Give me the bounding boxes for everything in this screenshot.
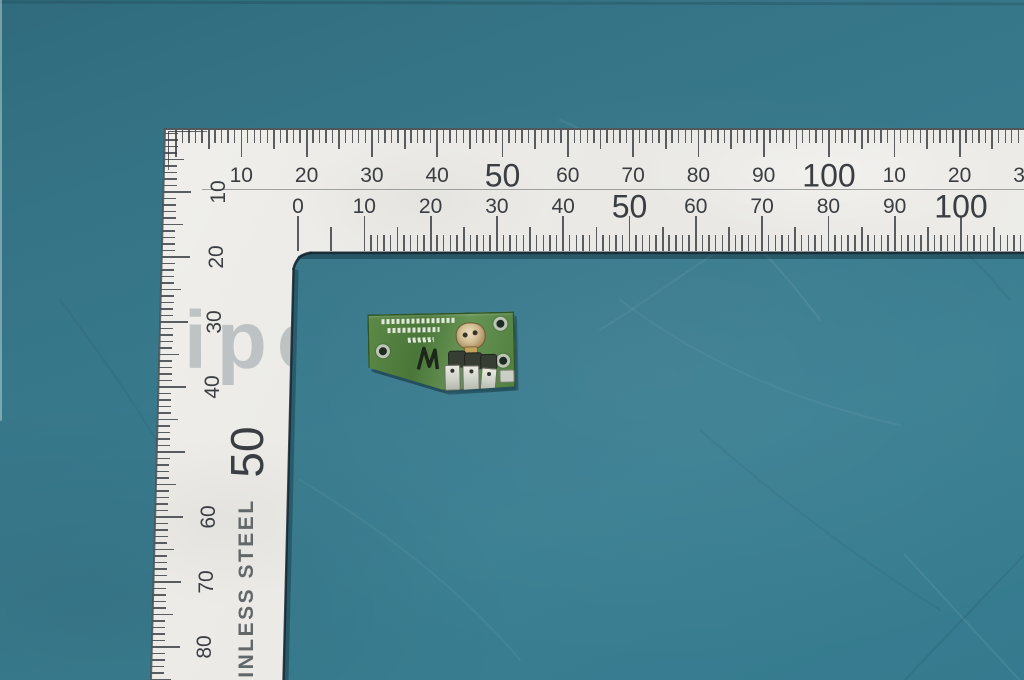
ruler-number-top: 10 [883,164,906,188]
ruler-tick [576,235,577,251]
ruler-tick [788,235,789,251]
ruler-tick [658,130,659,143]
ruler-tick [164,172,177,173]
ruler-tick [162,256,190,258]
ruler-tick [998,130,999,143]
ruler-number-top: 40 [426,164,449,188]
ruler-tick [954,235,955,251]
ruler-tick [254,130,255,143]
ruler-tick [543,235,544,251]
ruler-tick [489,235,490,251]
ruler-tick [947,235,948,251]
ruler-tick [345,130,346,143]
ruler-tick [639,130,640,143]
ruler-tick [160,328,173,329]
ruler-tick [619,130,620,143]
ruler-tick [188,130,189,143]
ruler-tick [529,227,531,251]
ruler-tick [655,235,656,251]
ruler-tick [675,235,676,251]
ruler-tick [952,130,953,143]
ruler-tick [665,130,667,149]
ruler-tick [756,130,757,143]
ruler-tick [536,235,537,251]
ruler-tick [914,235,915,251]
ruler-tick [717,130,718,143]
ruler-tick [154,575,167,576]
ruler-number-top: 20 [295,164,318,188]
ruler-tick [815,130,816,143]
ruler-tick [715,235,716,251]
ruler-tick [645,130,646,143]
ruler-tick [775,235,776,251]
ruler-tick [502,130,504,157]
ruler-tick [789,130,790,143]
ruler-tick [495,130,496,143]
ruler-tick [939,130,940,143]
ruler-number-left: 20 [205,245,229,268]
ruler-tick [383,235,384,251]
ruler-tick [306,130,308,157]
ruler-tick [972,130,973,143]
ruler-tick [509,235,510,251]
ruler-tick [900,130,901,143]
ruler-tick [609,235,610,251]
ruler-tick [503,235,504,251]
silkscreen-text-row [387,327,439,333]
ruler-tick [761,216,763,251]
ruler-tick [159,367,172,368]
ruler-tick [596,227,598,251]
mounting-hole [376,344,390,358]
ruler-tick [164,159,184,161]
ruler-tick [606,130,607,143]
ruler-tick [934,235,935,251]
ruler-tick [159,380,172,381]
ruler-tick [267,130,268,143]
ruler-tick [671,130,672,143]
ruler-tick [615,235,616,251]
ruler-tick [443,130,444,143]
ruler-tick [750,130,751,143]
ruler-tick [722,235,723,251]
product-photo: ipc STAINLESS STEEL 10203040506070809010… [0,0,1024,680]
ruler-tick [874,130,875,143]
ruler-tick [154,555,167,556]
ruler-tick [769,130,770,143]
ruler-tick [569,235,570,251]
ruler-tick [881,235,882,251]
ruler-tick [534,130,536,149]
ruler-tick [632,130,634,157]
ruler-tick [423,130,424,143]
ruler-tick [162,263,175,264]
ruler-tick [330,227,332,251]
ruler-tick [410,130,411,143]
ruler-tick [161,302,174,303]
mounting-hole [493,317,507,331]
ruler-number-top: 30 [1013,164,1024,188]
ruler-tick [987,235,988,251]
ruler-tick [195,130,196,143]
ruler-tick [861,227,863,251]
ruler-tick [528,130,529,143]
ruler-tick [155,516,183,518]
ruler-tick [854,130,855,143]
ruler-tick [809,130,810,143]
ruler-tick [927,227,929,251]
ruler-tick [319,130,320,143]
ruler-tick [201,130,202,143]
dark-marking [416,345,441,372]
stainless-steel-label: STAINLESS STEEL [235,498,259,680]
ruler-tick [158,406,171,407]
ruler-number-top: 20 [948,164,971,188]
ruler-number-inner: 60 [684,195,707,219]
ruler-tick [160,334,173,335]
ruler-tick [156,477,169,478]
ruler-tick [390,235,391,251]
ruler-tick [668,235,669,251]
ruler-tick [152,653,165,654]
ruler-tick [450,235,451,251]
ruler-tick [208,130,210,149]
ruler-tick [456,235,457,251]
ruler-tick [861,130,863,149]
ruler-tick [214,130,215,143]
ruler-tick [403,235,404,251]
ruler-tick [894,216,896,251]
ruler-tick [154,542,167,543]
ruler-number-left: 80 [193,635,217,658]
ruler-tick [370,235,371,251]
silkscreen-text-row [408,337,434,343]
ruler-tick [325,130,326,143]
ruler-tick [933,130,934,143]
ruler-tick [152,659,165,660]
ruler-tick [763,130,765,157]
ruler-tick [154,549,174,551]
ruler-tick [436,130,438,157]
ruler-tick [730,130,732,149]
ruler-tick [1018,130,1019,143]
ruler-tick [164,165,177,166]
ruler-tick [417,130,418,143]
ruler-tick [155,503,168,504]
ruler-tick [782,130,783,143]
ruler-tick [814,235,815,251]
ruler-tick [901,235,902,251]
ruler-tick [153,601,166,602]
ruler-tick [164,185,177,186]
ruler-tick [978,130,979,143]
ruler-tick [649,235,650,251]
ruler-tick [273,130,275,149]
ruler-tick [796,130,798,149]
ruler-tick [808,235,809,251]
ruler-number-inner: 10 [353,195,376,219]
ruler-tick [338,130,340,149]
ruler-tick [163,191,191,193]
ruler-tick [182,130,183,143]
ruler-tick [160,308,173,309]
ruler-tick [1007,235,1008,251]
ruler-tick [567,130,569,157]
ruler-tick [158,393,171,394]
ruler-tick [365,130,366,143]
ruler-tick [157,445,170,446]
ruler-tick [801,235,802,251]
ruler-tick [965,130,966,143]
ruler-tick [156,497,169,498]
ruler-tick [946,130,947,143]
ruler-number-top: 50 [485,158,521,195]
ruler-tick [154,562,167,563]
ruler-tick [776,130,777,143]
ruler-tick [642,235,643,251]
ruler-tick [151,666,164,667]
ruler-tick [164,152,177,153]
ruler-tick [802,130,803,143]
ruler-tick [159,360,172,361]
ruler-tick [894,130,896,157]
ruler-number-left: 60 [197,505,221,528]
ruler-tick [155,510,168,511]
ruler-number-inner: 40 [552,195,575,219]
ruler-tick [622,235,623,251]
ruler-tick [161,282,174,283]
ruler-tick [152,627,165,628]
ruler-tick [907,130,908,143]
ruler-tick [980,235,981,251]
ruler-tick [410,235,411,251]
ruler-tick [152,640,165,641]
ruler-number-top: 80 [687,164,710,188]
ruler-tick [554,130,555,143]
ruler-tick [691,130,692,143]
ruler-number-top: 100 [802,158,855,195]
ruler-tick [163,217,176,218]
ruler-tick [887,130,888,143]
ruler-tick [678,130,679,143]
ruler-tick [157,438,170,439]
ruler-tick [835,130,836,143]
ruler-tick [162,243,175,244]
ruler-tick [602,235,603,251]
ruler-tick [384,130,385,143]
ruler-tick [880,130,881,143]
ruler-tick [154,568,167,569]
ruler-tick [358,130,359,143]
ruler-tick [299,130,300,143]
ruler-tick [682,235,683,251]
ruler-tick [708,235,709,251]
ruler-tick [920,235,921,251]
ruler-tick [698,130,700,157]
ruler-tick [364,216,366,251]
ruler-tick [1005,130,1006,143]
ruler-tick [280,130,281,143]
ruler-tick [973,235,974,251]
ruler-number-inner: 20 [419,195,442,219]
ruler-tick [312,130,313,143]
ruler-tick [162,250,175,251]
ruler-tick [152,620,165,621]
ruler-number-top: 60 [556,164,579,188]
ruler-number-top: 90 [752,164,775,188]
ruler-tick [867,235,868,251]
silkscreen-text-row [381,318,455,325]
ruler-tick [161,276,174,277]
ruler-tick [547,130,548,143]
ruler-tick [874,235,875,251]
ruler-tick [165,139,178,140]
solder-pad [444,365,461,391]
ruler-tick [920,130,921,143]
ruler-tick [685,130,686,143]
ruler-tick [574,130,575,143]
ruler-tick [286,130,287,143]
ruler-tick [469,130,471,149]
ruler-tick [378,130,379,143]
ruler-tick [463,227,465,251]
ruler-tick [157,458,170,459]
ruler-tick [152,646,180,648]
ruler-tick [430,130,431,143]
ruler-tick [449,130,450,143]
ruler-tick [887,235,888,251]
ruler-tick [161,289,181,291]
ruler-tick [695,216,697,251]
ruler-tick [841,130,842,143]
ruler-tick [157,425,170,426]
ruler-tick [153,588,166,589]
ruler-tick [516,235,517,251]
ruler-tick [156,490,169,491]
ruler-tick [293,130,294,143]
ruler-tick [1013,235,1014,251]
ruler-tick [688,235,689,251]
ruler-number-inner: 0 [292,195,304,219]
ruler-tick [155,523,168,524]
ruler-number-inner: 70 [750,195,773,219]
ruler-tick [926,130,928,149]
ruler-tick [1020,235,1021,251]
ruler-tick [247,130,248,143]
ruler-tick [496,216,498,251]
ruler-tick [162,237,175,238]
ruler-tick [940,235,941,251]
ruler-tick [164,178,177,179]
ruler-tick [162,230,175,231]
ruler-tick [443,235,444,251]
ruler-tick [157,451,185,453]
ruler-tick [582,235,583,251]
ruler-number-left: 70 [195,570,219,593]
ruler-tick [159,373,172,374]
ruler-tick [711,130,712,143]
ruler-tick [158,419,178,421]
ruler-tick [541,130,542,143]
ruler-tick [848,130,849,143]
ruler-number-top: 30 [360,164,383,188]
ruler-tick [158,399,171,400]
ruler-tick [476,235,477,251]
ruler-tick [163,204,176,205]
ruler-tick [985,130,986,143]
ruler-number-inner: 100 [934,189,987,226]
ruler-tick [828,216,830,251]
ruler-tick [470,235,471,251]
ruler-number-left: 40 [201,375,225,398]
ruler-tick [841,235,842,251]
ruler-tick [834,235,835,251]
ruler-tick [157,432,170,433]
ruler-tick [156,484,176,486]
ruler-tick [161,269,174,270]
ruler-tick [456,130,457,143]
ruler-tick [397,227,399,251]
ruler-number-top: 70 [621,164,644,188]
ruler-tick [593,130,594,143]
ruler-tick [515,130,516,143]
ruler-tick [600,130,602,149]
ruler-tick [227,130,228,143]
ruler-tick [907,235,908,251]
ruler-tick [482,130,483,143]
ruler-tick [735,235,736,251]
ruler-tick [635,235,636,251]
ruler-tick [959,130,961,157]
ruler-tick [155,529,168,530]
ruler-tick [508,130,509,143]
ruler-tick [371,130,373,157]
ruler-tick [165,133,178,134]
ruler-tick [165,146,178,147]
ruler-tick [163,211,176,212]
ruler-tick [430,216,432,251]
ruler-tick [476,130,477,143]
ruler-tick [967,235,968,251]
ruler-tick [613,130,614,143]
ruler-tick [397,130,398,143]
ruler-tick [159,347,172,348]
ruler-tick [1011,130,1012,143]
ruler-tick [724,130,725,143]
ruler-tick [160,341,173,342]
ruler-tick [822,130,823,143]
ruler-tick [221,130,222,143]
ruler-number-inner: 90 [883,195,906,219]
ruler-tick [160,321,188,323]
ruler-tick [737,130,738,143]
ruler-tick [652,130,653,143]
ruler-tick [297,216,299,251]
ruler-tick [741,235,742,251]
ruler-tick [847,235,848,251]
ruler-tick [483,235,484,251]
ruler-number-inner: 30 [485,195,508,219]
ruler-tick [523,235,524,251]
ruler-tick [377,235,378,251]
ruler-tick [155,536,168,537]
ruler-tick [589,235,590,251]
ruler-tick [159,354,179,356]
ruler-tick [423,235,424,251]
ruler-tick [153,581,181,583]
ruler-tick [463,130,464,143]
ruler-tick [768,235,769,251]
